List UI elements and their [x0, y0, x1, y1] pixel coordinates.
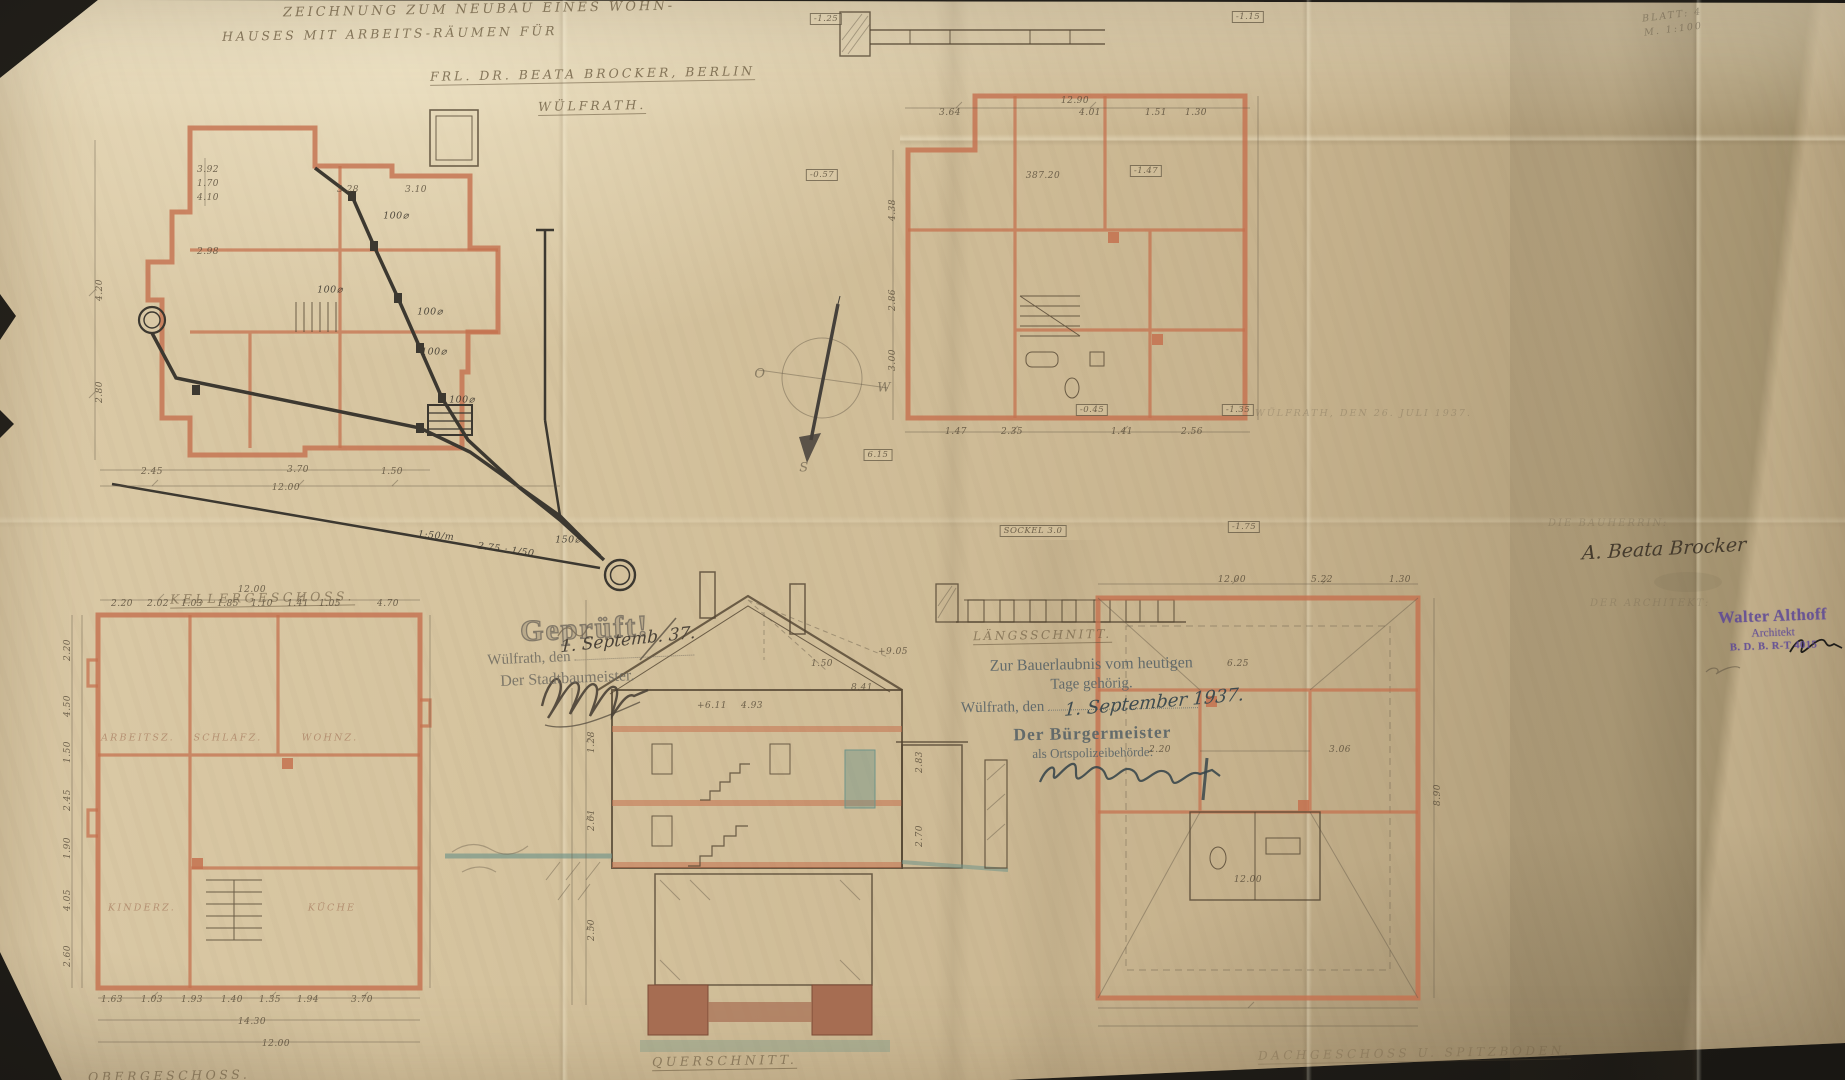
- photographed-blueprint-sheet: ZEICHNUNG ZUM NEUBAU EINES WOHN- HAUSES …: [0, 0, 1845, 1080]
- plan-label-strip: LÄNGSSCHNITT.: [973, 627, 1112, 645]
- plan-label-lower-left: OBERGESCHOSS.: [88, 1067, 251, 1080]
- date-inscription: WÜLFRATH, DEN 26. JULI 1937.: [1255, 408, 1472, 419]
- plan-label-section: QUERSCHNITT.: [652, 1052, 798, 1072]
- plan-label-drainage: KELLERGESCHOSS.: [170, 588, 355, 608]
- aged-paper-sheet: [0, 0, 1845, 1080]
- geprueft-place-line: Wülfrath, den: [487, 649, 571, 669]
- architect-stamp: Walter Althoff Architekt B. D. B. R-T 40…: [1699, 603, 1845, 654]
- architect-caption: DER ARCHITEKT:: [1590, 598, 1710, 609]
- client-caption: DIE BAUHERRIN:: [1548, 518, 1668, 529]
- bauerlaubnis-place-line: Wülfrath, den: [961, 699, 1045, 716]
- bauerlaubnis-line-1: Zur Bauerlaubnis vom heutigen: [960, 654, 1222, 677]
- date-blank-line: [574, 654, 694, 660]
- title-line-4: WÜLFRATH.: [538, 97, 647, 116]
